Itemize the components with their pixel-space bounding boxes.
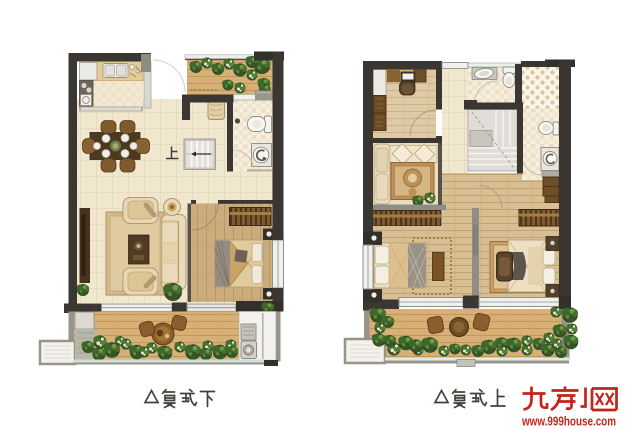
svg-text:www.999house.com: www.999house.com [521, 415, 616, 429]
